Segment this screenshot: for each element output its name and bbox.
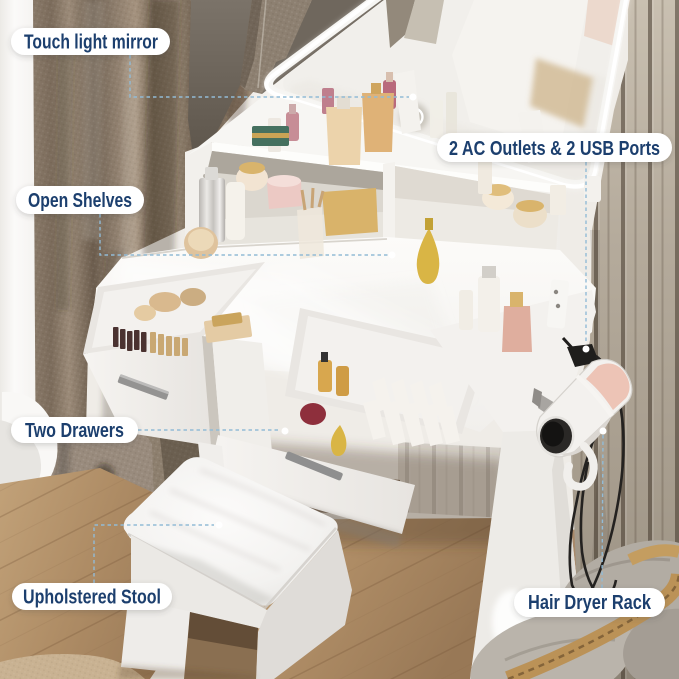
svg-text:Hair Dryer Rack: Hair Dryer Rack bbox=[528, 592, 652, 614]
svg-text:Open Shelves: Open Shelves bbox=[28, 190, 132, 212]
svg-text:Two Drawers: Two Drawers bbox=[25, 420, 124, 442]
svg-text:Touch light mirror: Touch light mirror bbox=[24, 32, 158, 54]
svg-text:Upholstered Stool: Upholstered Stool bbox=[23, 587, 161, 609]
svg-text:2 AC Outlets & 2 USB Ports: 2 AC Outlets & 2 USB Ports bbox=[449, 138, 660, 160]
